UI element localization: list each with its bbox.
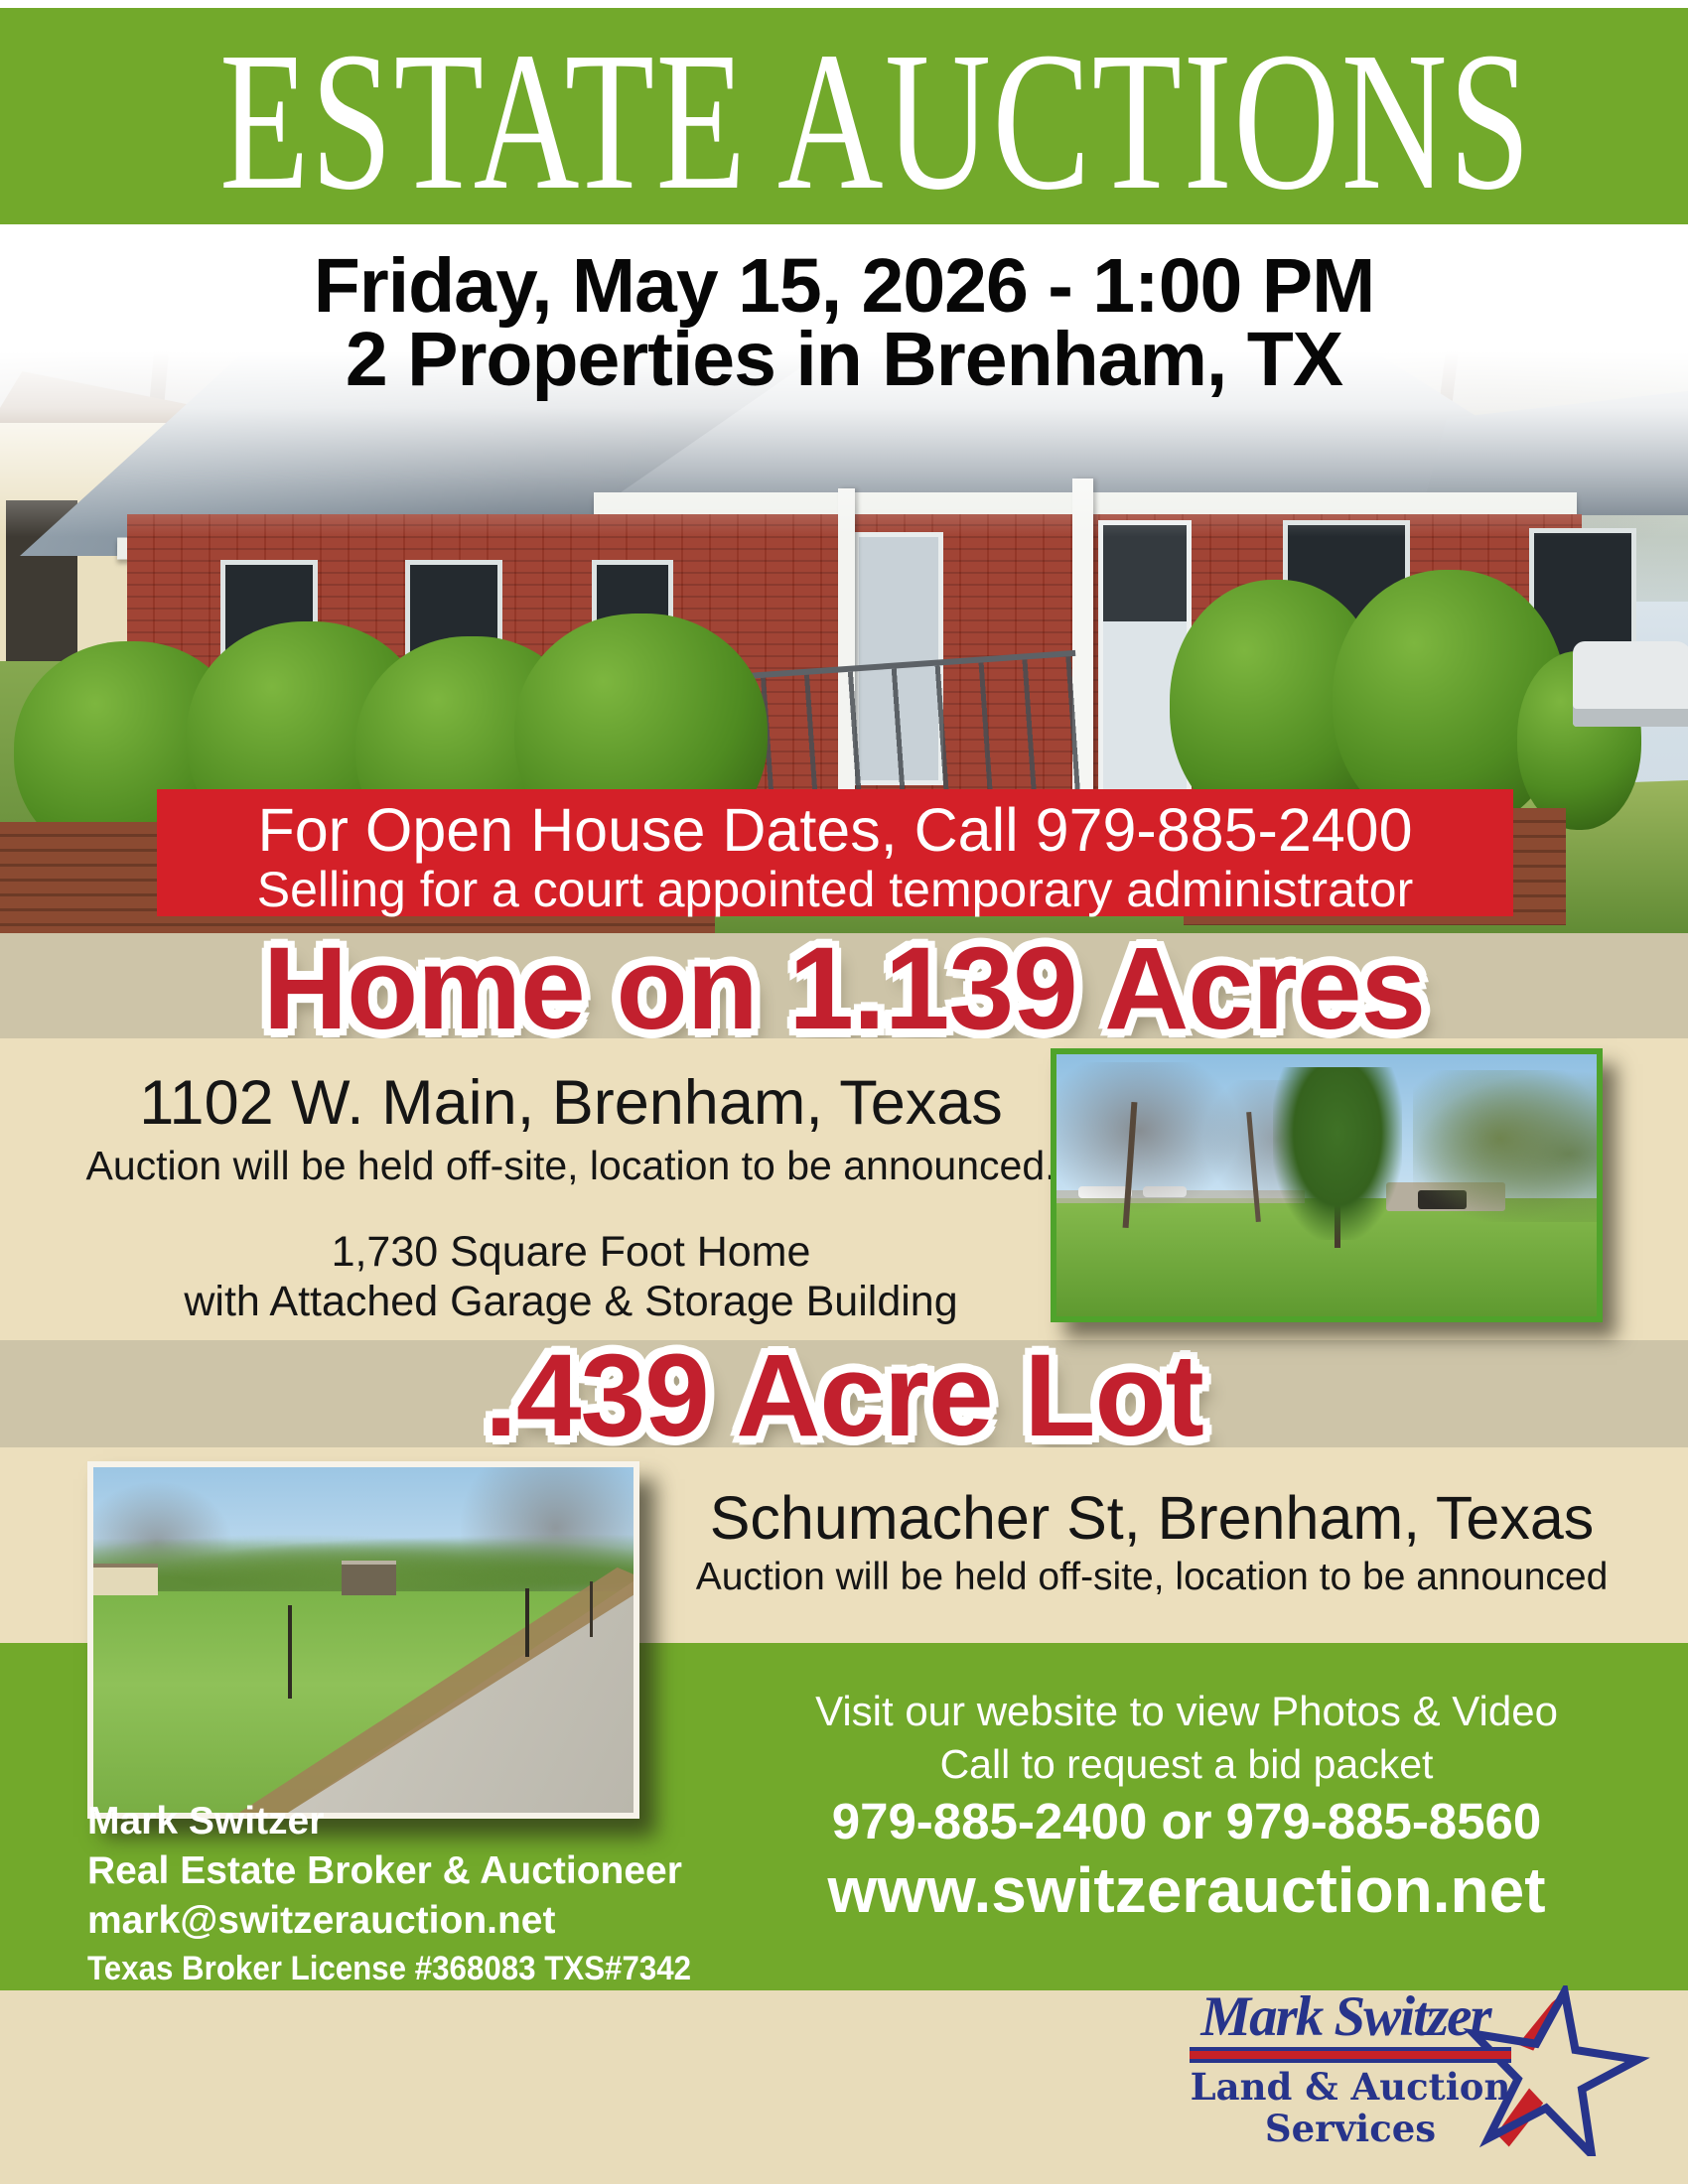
auctioneer-contact: Mark Switzer Real Estate Broker & Auctio… [87,1797,744,1991]
event-location: 2 Properties in Brenham, TX [0,320,1688,399]
logo-tagline-land-auction: Land & Auction [1190,2067,1511,2107]
lot-photo [87,1461,639,1819]
page-title: ESTATE AUCTIONS [219,20,1469,223]
truck [1573,641,1688,727]
event-headline: Friday, May 15, 2026 - 1:00 PM 2 Propert… [0,246,1688,399]
auctioneer-email: mark@switzerauction.net [87,1896,744,1946]
acreage-photo-scene [1056,1054,1597,1316]
auctioneer-role: Real Estate Broker & Auctioneer [87,1846,744,1896]
leafy-trees [1413,1070,1597,1222]
administrator-line: Selling for a court appointed temporary … [157,863,1513,916]
acreage-photo [1051,1048,1603,1322]
logo-underline-rule [1190,2047,1511,2063]
property1-headline: Home on 1.139 Acres [0,933,1688,1044]
pine-tree [1273,1067,1403,1240]
phone-numbers: 979-885-2400 or 979-885-8560 [685,1793,1688,1850]
fence-post [288,1605,292,1699]
open-house-line: For Open House Dates, Call 979-885-2400 [157,797,1513,863]
property1-note: Auction will be held off-site, location … [60,1142,1082,1189]
property2-note: Auction will be held off-site, location … [655,1555,1648,1600]
fence-post [525,1588,529,1658]
property1-sqft: 1,730 Square Foot Home [60,1227,1082,1277]
property2-address: Schumacher St, Brenham, Texas [655,1483,1648,1553]
property1-details: 1102 W. Main, Brenham, Texas Auction wil… [60,1068,1082,1326]
property1-address: 1102 W. Main, Brenham, Texas [60,1068,1082,1138]
open-house-banner: For Open House Dates, Call 979-885-2400 … [157,789,1513,916]
cta-bid-packet-note: Call to request a bid packet [685,1740,1688,1788]
cta-website-note: Visit our website to view Photos & Video [685,1688,1688,1735]
logo-tagline-services: Services [1190,2109,1511,2148]
property2-details: Schumacher St, Brenham, Texas Auction wi… [655,1483,1648,1600]
event-date: Friday, May 15, 2026 - 1:00 PM [0,246,1688,326]
website-url: www.switzerauction.net [685,1854,1688,1926]
property1-headline-band: Home on 1.139 Acres [0,933,1688,1038]
fence-post [590,1581,593,1637]
header-banner: ESTATE AUCTIONS [0,8,1688,224]
shed [342,1561,395,1595]
lot-photo-scene [93,1467,633,1813]
property2-headline-band: .439 Acre Lot [0,1340,1688,1447]
broker-license: Texas Broker License #368083 TXS#7342 [87,1946,691,1991]
neighbor-house [93,1564,158,1594]
auction-flyer: ESTATE AUCTIONS [0,0,1688,2184]
auctioneer-name: Mark Switzer [87,1797,744,1846]
property1-garage: with Attached Garage & Storage Building [60,1277,1082,1326]
logo-company-name: Mark Switzer [1180,1987,1511,2047]
property2-headline: .439 Acre Lot [0,1340,1688,1451]
